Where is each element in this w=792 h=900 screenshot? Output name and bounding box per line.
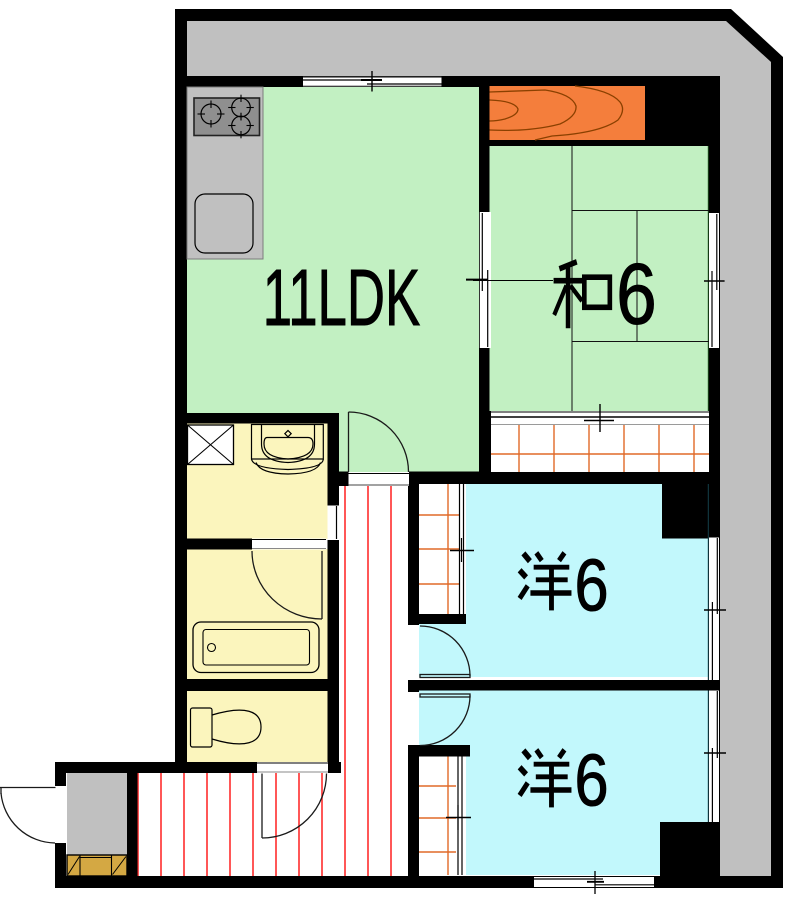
svg-text:11LDK: 11LDK <box>263 254 420 343</box>
svg-text:6: 6 <box>616 246 657 342</box>
svg-text:6: 6 <box>574 741 608 822</box>
svg-text:6: 6 <box>574 546 608 627</box>
